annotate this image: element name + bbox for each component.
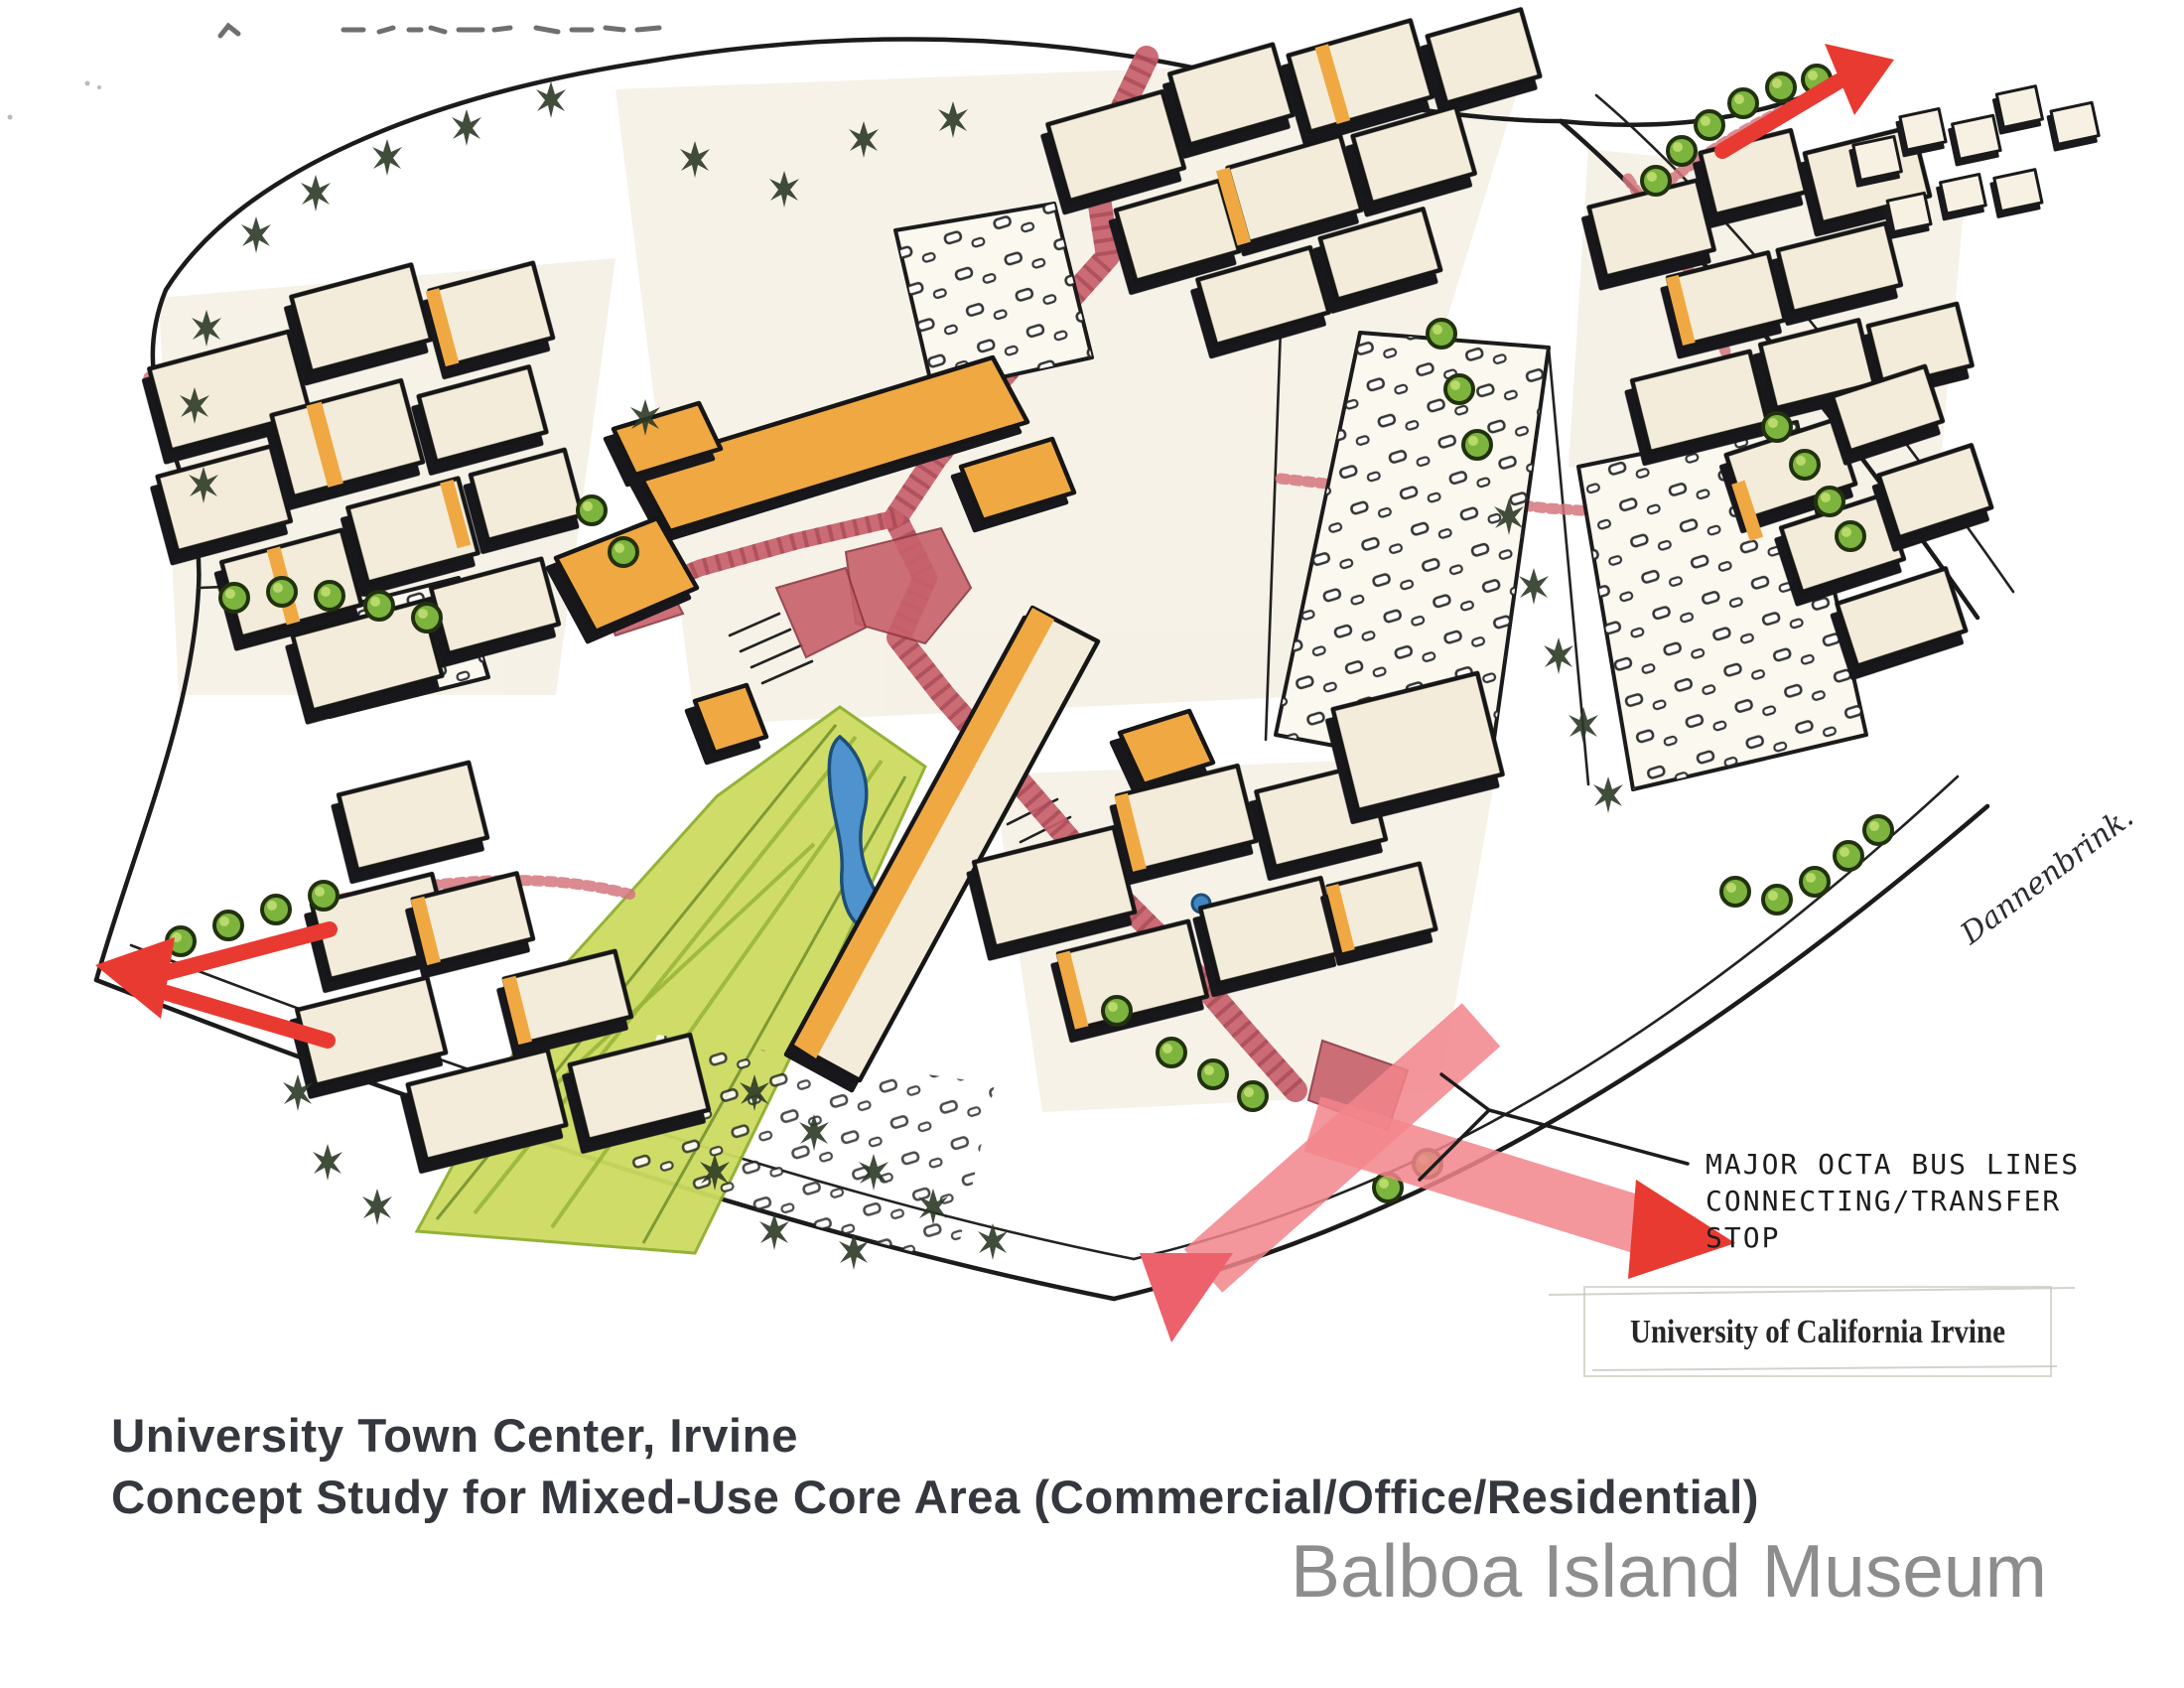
uci-label-box: University of California Irvine — [1549, 1287, 2075, 1376]
bus-note-line3: STOP — [1706, 1221, 1780, 1254]
bus-note: MAJOR OCTA BUS LINES CONNECTING/TRANSFER… — [1706, 1148, 2080, 1254]
uci-label: University of California Irvine — [1630, 1314, 2005, 1350]
bus-note-line1: MAJOR OCTA BUS LINES — [1706, 1148, 2080, 1181]
caption-subtitle: Concept Study for Mixed-Use Core Area (C… — [111, 1471, 1759, 1523]
concept-plan-drawing: MAJOR OCTA BUS LINES CONNECTING/TRANSFER… — [0, 0, 2184, 1688]
caption: University Town Center, Irvine Concept S… — [111, 1409, 1759, 1523]
bus-note-line2: CONNECTING/TRANSFER — [1706, 1185, 2061, 1217]
museum-watermark: Balboa Island Museum — [1291, 1529, 2047, 1613]
scan-specks — [8, 81, 102, 120]
caption-title: University Town Center, Irvine — [111, 1409, 798, 1462]
bus-arrow-southwest — [1140, 1253, 1233, 1342]
cutoff-text-fragment — [220, 26, 659, 36]
scanned-document-page: MAJOR OCTA BUS LINES CONNECTING/TRANSFER… — [0, 0, 2184, 1688]
designer-signature: Dannenbrink. — [1954, 799, 2140, 952]
